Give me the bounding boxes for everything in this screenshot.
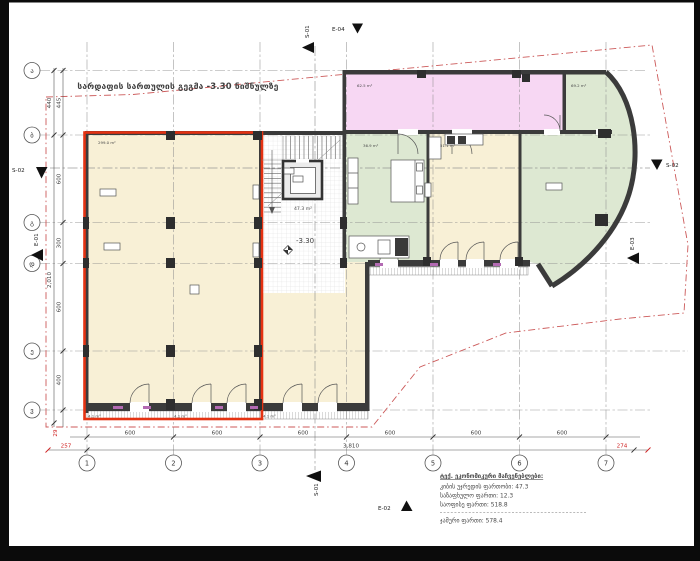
bedroom-area-label: 36.9 m² [363,143,379,148]
grid-col-5: 5 [431,460,435,468]
commercial-area-label: 299.0 m² [98,140,116,145]
section-arrow-s02-right [651,160,663,171]
grid-row-g: გ [30,219,34,227]
grid-row-b: ბ [30,132,34,140]
dim-l-400: 400 [57,374,63,385]
level-text: -3.30 [296,237,314,245]
summary-line3: საოფისე ფართი: 518.8 [440,502,508,509]
elevation-arrow-e03 [627,253,639,265]
dim-l-440: 440 [47,97,53,108]
grid-col-4: 4 [344,460,348,468]
elevation-arrow-e02 [401,501,413,512]
dim-b5: 600 [471,431,482,437]
living-area-label: 51.1 m² [440,143,456,148]
pink-area-label: 62.5 m² [357,83,373,88]
marker-e02-bottom: E-02 [378,506,391,512]
dim-l-445: 445 [57,97,63,108]
dim-b6: 600 [557,431,568,437]
entry-area-label-3: 4.1 m² [263,414,276,419]
grid-col-6: 6 [517,460,521,468]
dim-overall: 3,810 [343,444,359,450]
elevation-arrow-e04 [352,24,363,34]
summary-line2: საზაფხულო ფართი: 12.3 [440,493,513,500]
green-right-area-label: 69.2 m² [571,83,587,88]
marker-s01-bottom: S-01 [314,483,320,496]
marker-e01-left: E-01 [34,233,40,246]
entry-area-label-1: 4.1 m² [88,414,101,419]
left-dimensions: 440 2,010 445 600 300 600 400 [47,68,66,427]
drawing-viewport: -3.30 299.0 m² 47.3 m² 62.5 m² 69.2 m² 3… [0,0,700,561]
marker-e04-top: E-04 [332,27,345,33]
dim-l-600b: 600 [57,301,63,312]
section-arrow-s01-top [302,42,314,53]
dim-l-600a: 600 [57,173,63,184]
grid-col-1: 1 [85,460,89,468]
dim-b4: 600 [385,431,396,437]
grid-col-7: 7 [604,460,608,468]
grid-col-3: 3 [258,460,262,468]
grid-col-2: 2 [171,460,175,468]
summary-total: ჯამური ფართი: 578.4 [440,518,503,525]
summary-block: ტექ. ეკონომიკური მაჩვენებლები: კიბის უჯრ… [440,473,586,525]
dim-l-300: 300 [57,237,63,248]
section-arrow-s01-bottom [306,471,321,483]
bottom-dimensions: 600 600 600 600 600 600 3,810 257 274 29 [46,429,651,452]
floor-plan-svg: -3.30 299.0 m² 47.3 m² 62.5 m² 69.2 m² 3… [0,0,700,561]
marker-s02-left: S-02 [12,168,25,174]
dim-l-2010: 2,010 [47,272,53,288]
marker-e03-right: E-03 [630,237,636,250]
dim-red-small: 29 [53,429,59,437]
marker-s02-right: S-02 [666,163,679,169]
summary-heading: ტექ. ეკონომიკური მაჩვენებლები: [440,473,543,480]
dim-b1: 600 [125,431,136,437]
dim-b3: 600 [298,431,309,437]
dim-red-right: 274 [617,444,628,450]
plan-title: სარდაფის სართულის გეგმა -3.30 ნიშნულზე [77,81,278,91]
grid-row-d: დ [29,260,34,268]
grid-row-e: ე [30,348,33,356]
dim-red-left: 257 [61,444,72,450]
stair-area-label: 47.3 m² [294,206,312,212]
summary-line1: კიბის უჯრედის ფართობი: 47.3 [440,484,529,491]
marker-s01-top: S-01 [305,25,311,38]
entry-area-label-2: 4.1 m² [174,414,187,419]
dim-b2: 600 [212,431,223,437]
